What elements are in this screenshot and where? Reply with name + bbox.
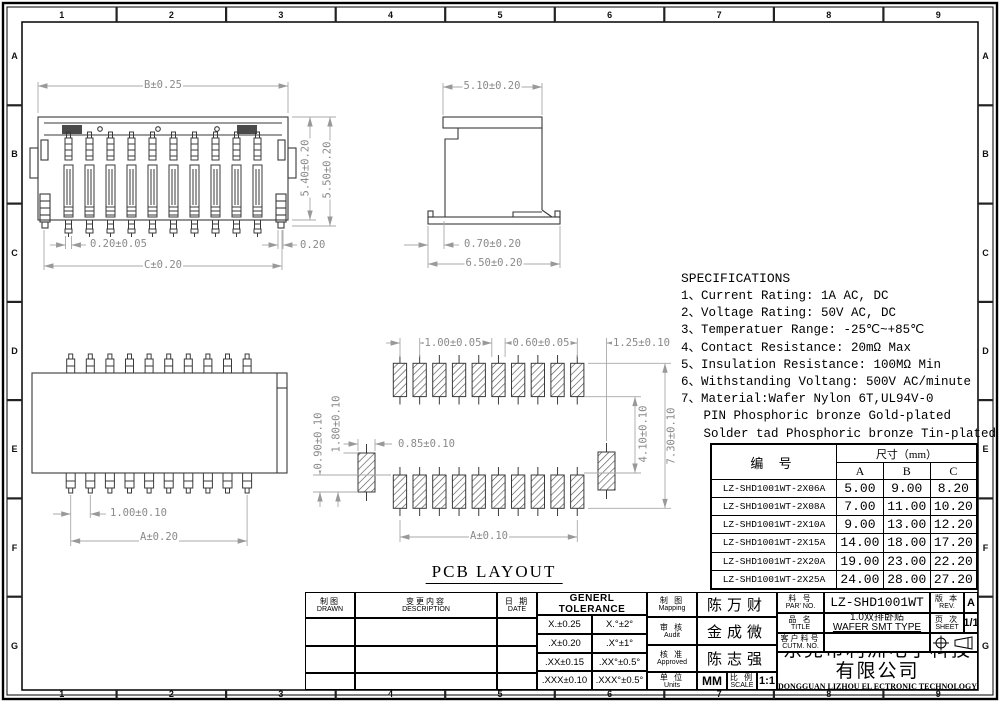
part-number-value: LZ-SHD1001WT: [824, 592, 930, 613]
table-header-part-number: 编 号: [711, 444, 837, 480]
pcb-layout-title: PCB LAYOUT: [426, 562, 563, 584]
label-cn: 制图: [320, 597, 340, 606]
dim-a: 19.00: [837, 552, 884, 570]
label-en: DATE: [508, 606, 526, 614]
part-number: LZ-SHD1001WT-2X20A: [711, 552, 837, 570]
side-view: [428, 117, 560, 224]
dim-a: 7.00: [837, 498, 884, 516]
frame-zone-label: 2: [117, 7, 227, 22]
frame-zone-label: 6: [555, 7, 665, 22]
label-cn: 版 本: [935, 594, 959, 603]
dim-a: 9.00: [837, 516, 884, 534]
mapping-name: 陈万财: [697, 592, 777, 617]
tolerance-value: X.°±2°: [606, 619, 633, 630]
label-en: TITLE: [791, 624, 810, 632]
dim-b: 13.00: [883, 516, 930, 534]
table-header-b: B: [883, 463, 930, 480]
tolerance-value: .XXX±0.10: [542, 675, 587, 686]
frame-zone-label: B: [978, 105, 993, 203]
titleblock-date: 日 期 DATE: [497, 592, 537, 618]
titleblock-tolerance-header: GENERL TOLERANCE: [537, 592, 647, 615]
label-en: CUTM. NO.: [782, 643, 819, 651]
frame-zone-label: E: [978, 400, 993, 498]
tolerance-title: GENERL TOLERANCE: [538, 593, 646, 615]
label-en: Approved: [657, 659, 687, 667]
tolerance-angular: .X°±1°: [592, 634, 647, 653]
rev-value: A: [964, 592, 978, 613]
dimension-label: A±0.20: [139, 531, 179, 544]
dim-c: 22.20: [930, 552, 977, 570]
third-angle-projection-icon: [932, 635, 976, 651]
dimension-label: 1.80±0.10: [331, 395, 344, 454]
revision: A: [967, 597, 975, 609]
approved-name: 陈志强: [697, 645, 777, 672]
titleblock-description: 变更内容 DESCRIPTION: [355, 592, 497, 618]
dimension-label: 7.30±0.10: [666, 407, 679, 466]
frame-zone-label: 4: [336, 7, 446, 22]
titleblock-empty-cell: [305, 646, 355, 673]
table-row: LZ-SHD1001WT-2X15A14.0018.0017.20: [711, 534, 977, 552]
tolerance-linear: .XX±0.15: [537, 653, 592, 671]
tolerance-value: X.±0.25: [548, 619, 581, 630]
table-row: LZ-SHD1001WT-2X06A5.009.008.20: [711, 480, 977, 498]
dimension-label: 0.20±0.05: [89, 238, 148, 251]
frame-zone-label: 9: [884, 7, 994, 22]
frame-zone-label: D: [978, 302, 993, 400]
frame-zone-label: G: [978, 597, 993, 695]
part-number: LZ-SHD1001WT: [830, 595, 924, 610]
frame-zone-label: 1: [7, 688, 117, 700]
titleblock-empty-cell: [355, 618, 497, 646]
specifications-block: SPECIFICATIONS 1、Current Rating: 1A AC, …: [681, 270, 981, 443]
table-row: LZ-SHD1001WT-2X10A9.0013.0012.20: [711, 516, 977, 534]
dim-b: 11.00: [883, 498, 930, 516]
table-header-c: C: [930, 463, 977, 480]
label-en: REV.: [939, 603, 955, 611]
dimension-label: A±0.10: [469, 530, 509, 543]
dim-b: 23.00: [883, 552, 930, 570]
label-en: Mapping: [659, 605, 686, 613]
spec-line: 2、Voltage Rating: 50V AC, DC: [681, 305, 981, 322]
titleblock-title-label: 品 名 TITLE: [777, 613, 824, 633]
dim-a: 5.00: [837, 480, 884, 498]
frame-zone-label: A: [7, 7, 22, 105]
units: MM: [702, 674, 722, 688]
label-en: Audit: [664, 632, 680, 640]
part-number: LZ-SHD1001WT-2X08A: [711, 498, 837, 516]
table-row: LZ-SHD1001WT-2X25A24.0028.0027.20: [711, 570, 977, 589]
frame-zone-label: 3: [226, 688, 336, 700]
frame-zone-label: F: [7, 498, 22, 596]
company-name-cn: 东莞市利洲电子科技有限公司: [778, 652, 977, 682]
dimension-label: 5.10±0.20: [463, 80, 522, 93]
titleblock-audit-label: 审 核 Audit: [647, 617, 697, 645]
titleblock-empty-cell: [497, 618, 537, 646]
frame-zone-label: 8: [774, 688, 884, 700]
label-cn: 日 期: [505, 597, 529, 606]
label-cn: 审 核: [660, 623, 684, 632]
table-row: LZ-SHD1001WT-2X08A7.0011.0010.20: [711, 498, 977, 516]
company-block: 东莞市利洲电子科技有限公司 DONGGUAN LIZHOU EL ECTRONI…: [777, 652, 978, 690]
dim-c: 8.20: [930, 480, 977, 498]
audit-name: 金成微: [697, 617, 777, 645]
label-en: DESCRIPTION: [402, 606, 450, 614]
sheet: 1/1: [964, 617, 978, 629]
tolerance-value: .X±0.20: [548, 638, 581, 649]
front-view: [30, 117, 296, 237]
part-size-table: 编 号 尺寸（mm） A B C LZ-SHD1001WT-2X06A5.009…: [710, 443, 978, 590]
dim-b: 18.00: [883, 534, 930, 552]
label-cn: 料 号: [788, 594, 812, 603]
table-header-size: 尺寸（mm）: [837, 444, 978, 463]
dimension-label: C±0.20: [143, 259, 183, 272]
titleblock-partno-label: 料 号 PAR' NO.: [777, 592, 824, 613]
dimension-label: 1.25±0.10: [612, 337, 671, 350]
titleblock-empty-cell: [305, 618, 355, 646]
table-row: LZ-SHD1001WT-2X20A19.0023.0022.20: [711, 552, 977, 570]
part-number: LZ-SHD1001WT-2X15A: [711, 534, 837, 552]
dimension-label: 1.00±0.10: [109, 507, 168, 520]
spec-line: 7、Material:Wafer Nylon 6T,UL94V-0: [681, 391, 981, 408]
spec-line: PIN Phosphoric bronze Gold-plated: [681, 408, 981, 425]
product-title-value: 1.0双排卧贴 WAFER SMT TYPE: [824, 613, 930, 633]
frame-zone-label: 5: [445, 7, 555, 22]
dim-a: 24.00: [837, 570, 884, 589]
label-cn: 核 准: [660, 650, 684, 659]
spec-line: 4、Contact Resistance: 20mΩ Max: [681, 340, 981, 357]
frame-zone-label: 4: [336, 688, 446, 700]
tolerance-linear: X.±0.25: [537, 615, 592, 634]
frame-zone-label: 5: [445, 688, 555, 700]
tolerance-angular: .XX°±0.5°: [592, 653, 647, 671]
person-name: 陈志强: [707, 648, 767, 669]
frame-zone-label: C: [978, 204, 993, 302]
label-en: PAR' NO.: [786, 603, 816, 611]
top-view: [32, 354, 287, 493]
dimension-label: 6.50±0.20: [465, 257, 524, 270]
label-cn: 制 图: [660, 596, 684, 605]
frame-zone-label: 7: [664, 7, 774, 22]
frame-zone-label: 7: [664, 688, 774, 700]
part-number: LZ-SHD1001WT-2X06A: [711, 480, 837, 498]
frame-zone-label: B: [7, 105, 22, 203]
projection-symbol-cell: [930, 633, 978, 652]
tolerance-value: .XXX°±0.5°: [596, 675, 644, 686]
frame-bottom-numbers: 123456789: [7, 688, 993, 700]
titleblock-empty-cell: [497, 646, 537, 673]
frame-zone-label: C: [7, 204, 22, 302]
scale: 1:1: [759, 675, 775, 687]
dimension-label: 0.60±0.05: [512, 337, 571, 350]
label-cn: 品 名: [788, 615, 812, 624]
dimension-label: 1.00±0.05: [424, 337, 483, 350]
person-name: 陈万财: [707, 594, 767, 615]
part-number: LZ-SHD1001WT-2X25A: [711, 570, 837, 589]
spec-line: 5、Insulation Resistance: 100MΩ Min: [681, 357, 981, 374]
titleblock-mapping-label: 制 图 Mapping: [647, 592, 697, 617]
spec-line: 1、Current Rating: 1A AC, DC: [681, 288, 981, 305]
label-en: DRAWN: [317, 606, 343, 614]
frame-zone-label: F: [978, 498, 993, 596]
tolerance-value: .XX°±0.5°: [599, 657, 640, 668]
part-number: LZ-SHD1001WT-2X10A: [711, 516, 837, 534]
label-en: SHEET: [935, 624, 958, 632]
frame-zone-label: 8: [774, 7, 884, 22]
spec-line: Solder tad Phosphoric bronze Tin-plated: [681, 426, 981, 443]
front-view-dimensions: [38, 82, 336, 270]
tolerance-linear: .X±0.20: [537, 634, 592, 653]
frame-zone-label: 6: [555, 688, 665, 700]
customer-partno-value: [824, 633, 930, 652]
tolerance-angular: X.°±2°: [592, 615, 647, 634]
frame-left-letters: ABCDEFG: [7, 7, 22, 695]
engineering-drawing-sheet: 123456789 123456789 ABCDEFG ABCDEFG B±0.…: [0, 0, 1000, 702]
frame-zone-label: D: [7, 302, 22, 400]
frame-zone-label: A: [978, 7, 993, 105]
dimension-label: 5.40±0.20: [300, 139, 313, 198]
frame-right-letters: ABCDEFG: [978, 7, 993, 695]
dimension-label: 5.50±0.20: [322, 141, 335, 200]
table-header-a: A: [837, 463, 884, 480]
dim-b: 28.00: [883, 570, 930, 589]
spec-line: 3、Temperatuer Range: -25℃~+85℃: [681, 322, 981, 339]
dim-a: 14.00: [837, 534, 884, 552]
pcb-pads: [358, 355, 615, 516]
dimension-label: 0.20: [299, 239, 326, 252]
titleblock-rev-label: 版 本 REV.: [930, 592, 964, 613]
frame-zone-label: E: [7, 400, 22, 498]
dimension-label: 0.85±0.10: [397, 438, 456, 451]
label-cn: 客户料号: [781, 634, 821, 643]
product-name-en: WAFER SMT TYPE: [833, 623, 921, 633]
dim-c: 10.20: [930, 498, 977, 516]
dimension-label: 4.10±0.10: [638, 405, 651, 464]
frame-zone-label: 3: [226, 7, 336, 22]
label-cn: 比 例: [730, 673, 754, 682]
titleblock-empty-cell: [355, 646, 497, 673]
frame-zone-label: 9: [884, 688, 994, 700]
dimension-label: 0.70±0.20: [463, 238, 522, 251]
titleblock-drawn: 制图 DRAWN: [305, 592, 355, 618]
dim-c: 27.20: [930, 570, 977, 589]
sheet-value: 1/1: [964, 613, 978, 633]
tolerance-value: .XX±0.15: [545, 657, 584, 668]
titleblock-customer-label: 客户料号 CUTM. NO.: [777, 633, 824, 652]
dim-c: 12.20: [930, 516, 977, 534]
dim-b: 9.00: [883, 480, 930, 498]
spec-line: 6、Withstanding Voltang: 500V AC/minute: [681, 374, 981, 391]
specifications-title: SPECIFICATIONS: [681, 270, 981, 288]
frame-zone-label: 1: [7, 7, 117, 22]
label-cn: 变更内容: [406, 597, 446, 606]
frame-top-numbers: 123456789: [7, 7, 993, 22]
dimension-label: B±0.25: [143, 79, 183, 92]
frame-zone-label: G: [7, 597, 22, 695]
person-name: 金成微: [707, 621, 767, 642]
pcb-dimensions: [313, 338, 671, 542]
dimension-label: 0.90±0.10: [313, 412, 326, 471]
frame-zone-label: 2: [117, 688, 227, 700]
dim-c: 17.20: [930, 534, 977, 552]
titleblock-sheet-label: 页 次 SHEET: [930, 613, 964, 633]
titleblock-approved-label: 核 准 Approved: [647, 645, 697, 672]
label-cn: 页 次: [935, 615, 959, 624]
label-cn: 单 位: [660, 673, 684, 682]
specifications-lines: 1、Current Rating: 1A AC, DC2、Voltage Rat…: [681, 288, 981, 443]
tolerance-value: .X°±1°: [606, 638, 633, 649]
